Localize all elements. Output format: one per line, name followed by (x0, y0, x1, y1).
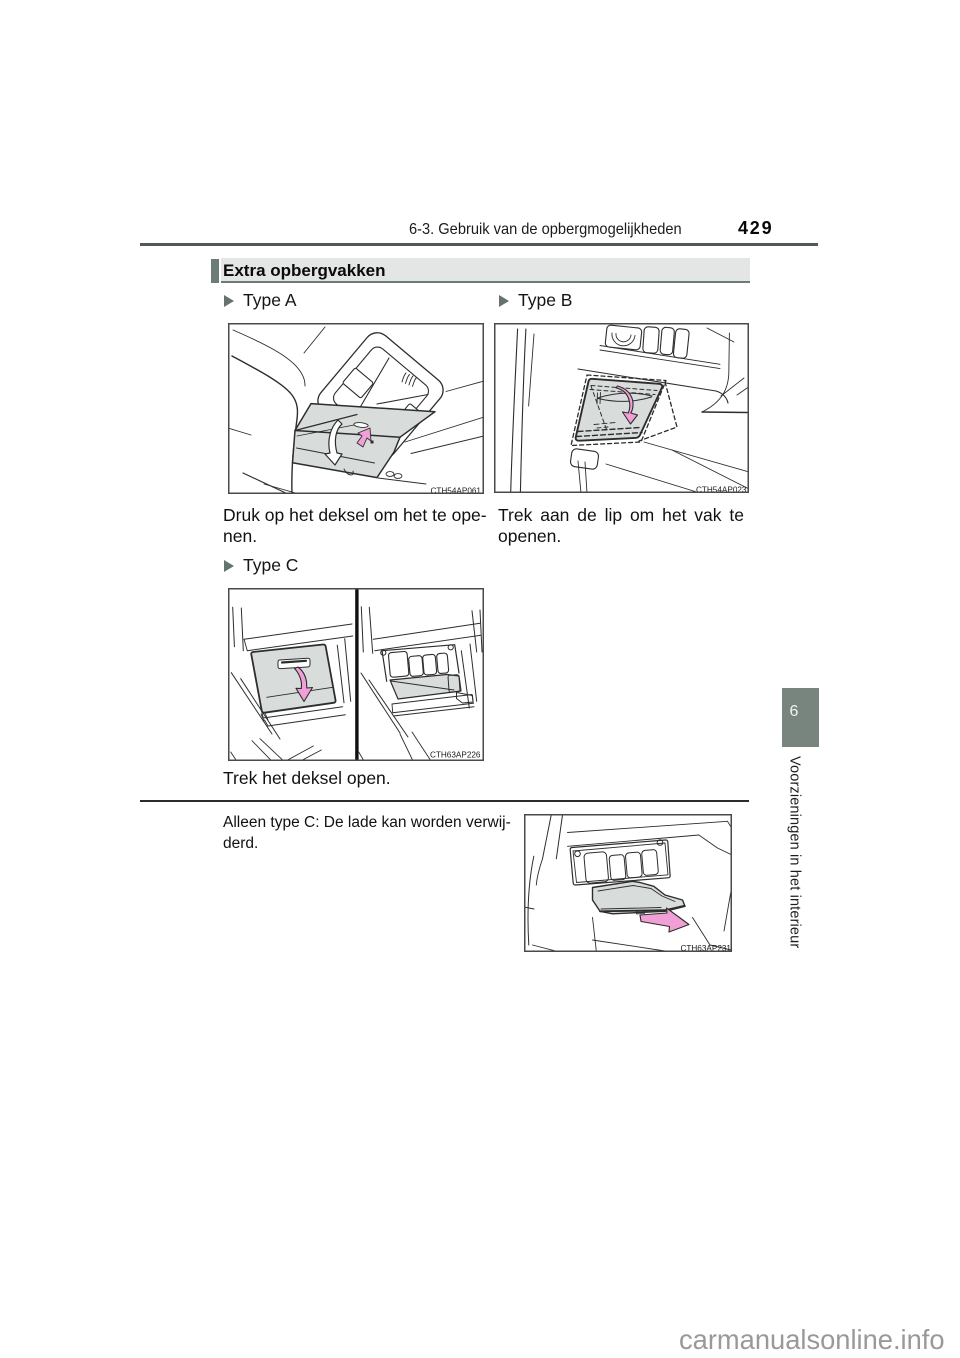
svg-text:CTH63AP226: CTH63AP226 (430, 751, 481, 760)
